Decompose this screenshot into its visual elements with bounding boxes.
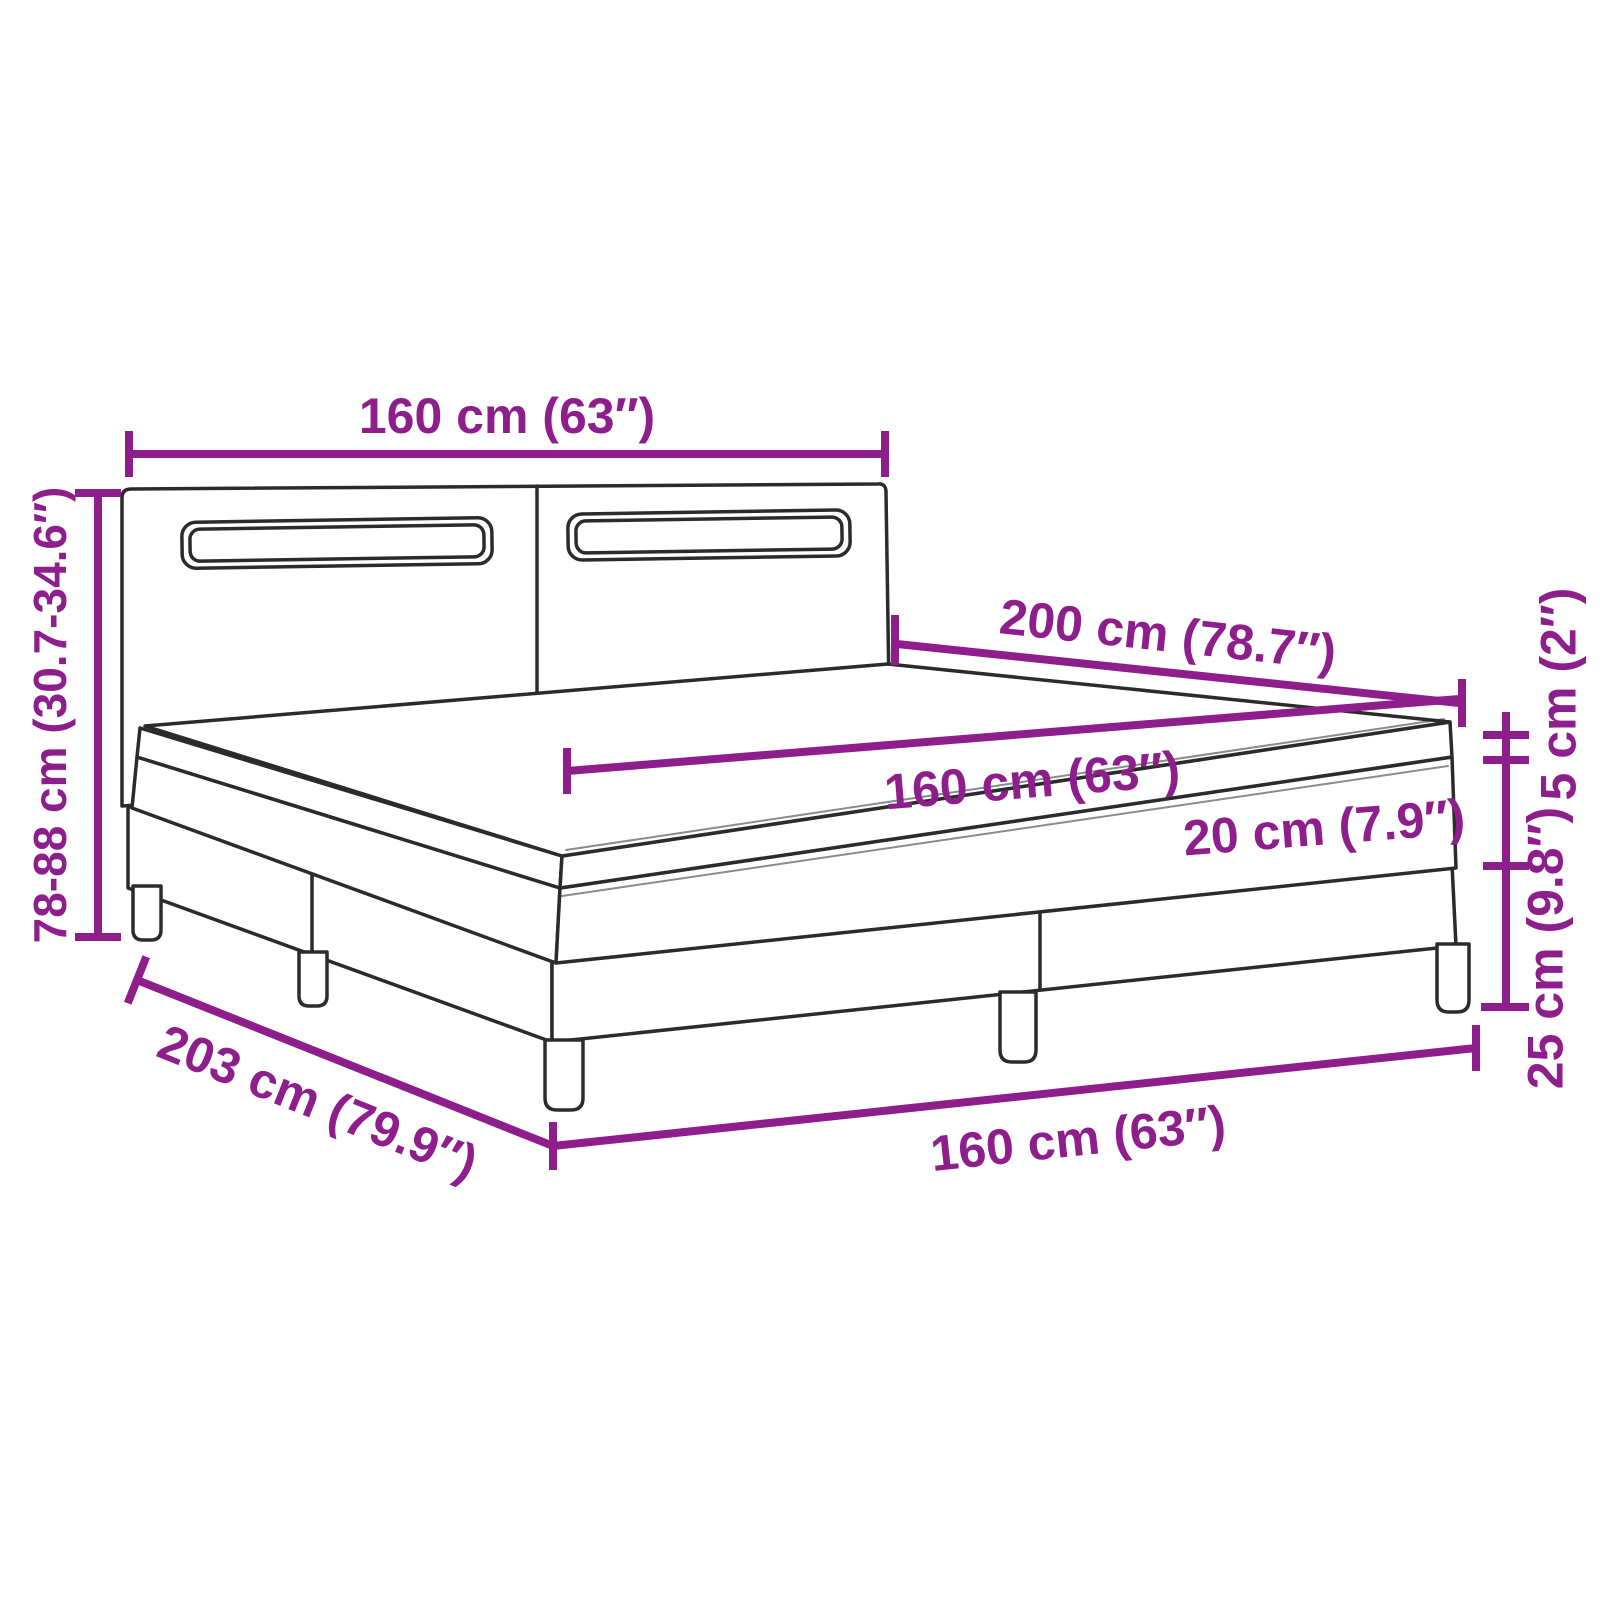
led-strip-right [568, 510, 851, 560]
total-height-label: 78-88 cm (30.7-34.6″) [24, 487, 76, 944]
mattress-length-label: 200 cm (78.7″) [997, 588, 1339, 680]
led-slot-right-inner [576, 517, 842, 553]
led-slot-left-inner [190, 525, 484, 562]
bed-leg [545, 1040, 583, 1110]
topper-height-label: 5 cm (2″) [1531, 588, 1587, 801]
bed-leg [1000, 992, 1036, 1062]
dim-total-height [75, 493, 121, 937]
headboard-width-label: 160 cm (63″) [359, 388, 655, 444]
bed-drawing [122, 484, 1469, 1110]
bed-dimension-diagram: 160 cm (63″) 78-88 cm (30.7-34.6″) 200 c… [0, 0, 1600, 1600]
bed-leg [133, 886, 161, 940]
bed-leg [299, 952, 327, 1006]
led-strip-left [182, 518, 493, 569]
base-width-label: 160 cm (63″) [928, 1095, 1229, 1182]
bed-leg [1437, 944, 1469, 1012]
base-height-label: 25 cm (9.8″) [1518, 807, 1574, 1089]
